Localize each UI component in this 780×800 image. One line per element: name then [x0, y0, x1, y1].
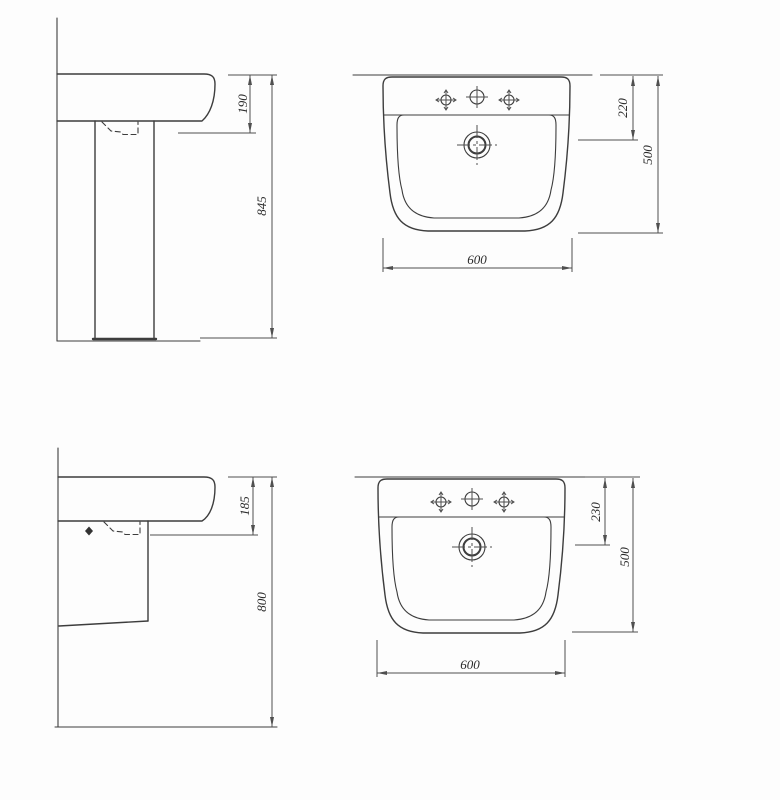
fixing-point-icon [85, 527, 93, 536]
semipedestal-plan-view: 230 500 600 [355, 477, 640, 677]
dimension-tap-to-drain: 220 [578, 75, 663, 140]
basin-plan [378, 479, 565, 633]
hidden-drain-outline [102, 122, 138, 135]
dim-label-190: 190 [235, 94, 250, 114]
basin-profile [57, 74, 215, 121]
semipedestal-side-view: 185 800 [55, 448, 277, 727]
dim-label-600: 600 [467, 252, 487, 267]
dimension-tap-to-drain: 230 [575, 477, 640, 545]
dimension-basin-height: 185 [150, 477, 277, 535]
dim-label-185: 185 [237, 496, 252, 516]
pedestal-side-view: 190 845 [57, 18, 277, 341]
dim-label-220: 220 [615, 98, 630, 118]
pedestal-outline [93, 121, 156, 339]
dim-label-845: 845 [254, 196, 269, 216]
basin-plan [383, 77, 570, 231]
dim-label-230: 230 [588, 502, 603, 522]
dim-label-600: 600 [460, 657, 480, 672]
dim-label-500: 500 [640, 145, 655, 165]
dimension-basin-height: 190 [178, 75, 277, 133]
washbasin-technical-drawing: 190 845 220 500 600 [0, 0, 780, 800]
hidden-drain-outline [104, 522, 140, 535]
semi-pedestal-outline [59, 521, 148, 626]
dim-label-500: 500 [617, 547, 632, 567]
drawing-sheet: 190 845 220 500 600 [0, 0, 780, 800]
dimension-total-height: 800 [254, 477, 272, 727]
dimension-width: 600 [383, 238, 572, 272]
pedestal-plan-view: 220 500 600 [353, 75, 663, 272]
dimension-width: 600 [377, 640, 565, 677]
basin-profile [58, 477, 215, 521]
dim-label-800: 800 [254, 592, 269, 612]
